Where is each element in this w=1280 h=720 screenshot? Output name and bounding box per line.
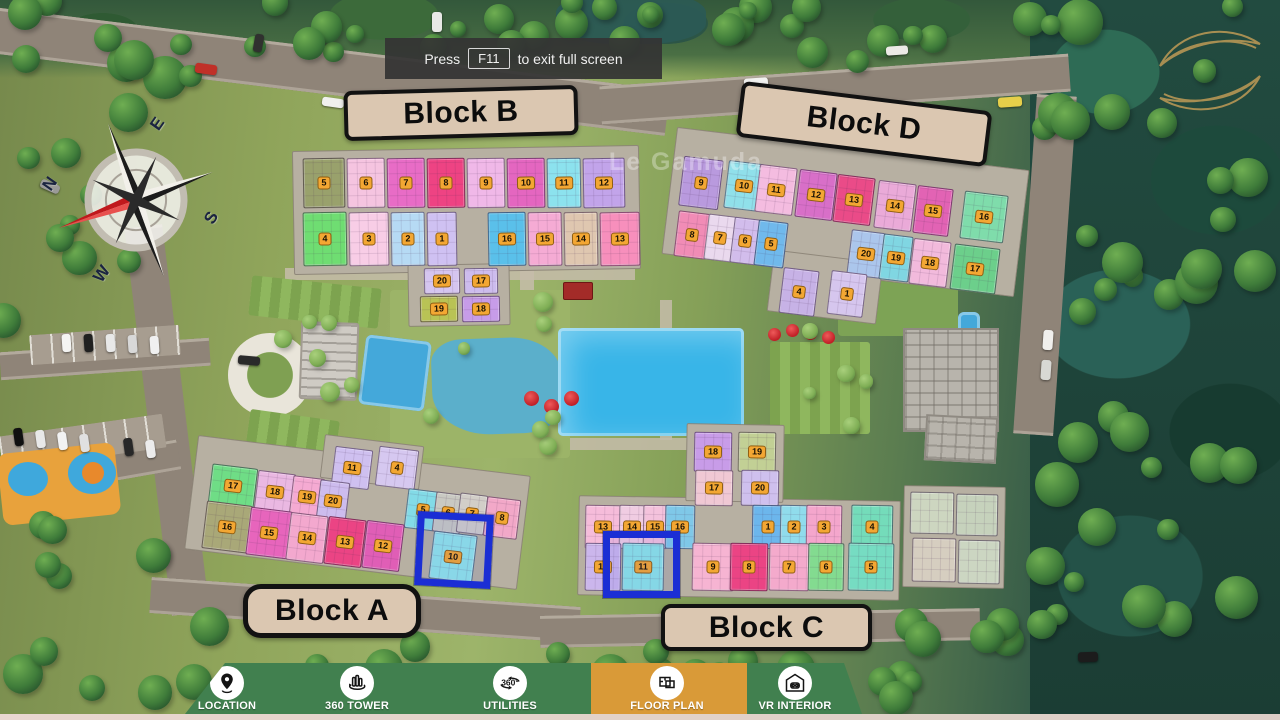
car (321, 97, 344, 109)
tree (545, 410, 560, 425)
unit-number-badge: 10 (734, 178, 753, 193)
leisure-pool (358, 334, 432, 412)
tree (1110, 412, 1149, 451)
unit-number-badge: 1 (840, 287, 855, 301)
unit-tile[interactable]: 13 (323, 516, 367, 568)
tree (1220, 447, 1257, 484)
unit-number-badge: 18 (472, 302, 490, 315)
unit-number-badge: 20 (856, 246, 875, 261)
leaf-emblem-logo (1150, 18, 1270, 128)
unit-number-badge: 9 (479, 176, 492, 189)
unit-number-badge: 7 (399, 176, 412, 189)
unit-number-badge: 7 (713, 231, 728, 245)
tree (1210, 207, 1235, 232)
tree (1041, 15, 1061, 35)
selected-unit-highlight (603, 531, 680, 598)
tree (423, 408, 439, 424)
car (105, 334, 115, 353)
unit-number-badge: 19 (748, 445, 766, 458)
nav-item-360-tower[interactable]: 360 TOWER (297, 663, 417, 714)
nav-label-vr-interior: VR INTERIOR (735, 700, 855, 712)
block-a-label: Block A (243, 584, 421, 638)
toast-prefix: Press (424, 51, 460, 67)
unit-tile[interactable]: 19 (420, 296, 458, 323)
fullscreen-toast: Press F11 to exit full screen (385, 38, 662, 79)
unit-tile[interactable] (912, 538, 957, 583)
tree (802, 323, 818, 339)
unit-number-badge: 20 (323, 493, 342, 508)
tree (346, 25, 364, 43)
unit-number-badge: 4 (865, 520, 878, 533)
unit-tile[interactable]: 16 (959, 190, 1009, 243)
tree (458, 342, 470, 354)
unit-tile[interactable]: 18 (462, 296, 500, 323)
tree (1058, 422, 1098, 462)
tree (35, 552, 61, 578)
tree (12, 45, 40, 73)
unit-number-badge: 18 (920, 255, 939, 270)
unit-number-badge: 15 (259, 525, 278, 540)
unit-number-badge: 17 (472, 274, 490, 287)
unit-tile[interactable]: 17 (949, 243, 1000, 294)
unit-number-badge: 18 (704, 445, 722, 458)
unit-number-badge: 8 (742, 560, 755, 573)
unit-number-badge: 17 (965, 261, 984, 276)
tree (903, 26, 922, 45)
car (998, 96, 1023, 108)
car (1042, 330, 1053, 351)
unit-number-badge: 5 (764, 237, 779, 251)
tree (323, 42, 344, 63)
unit-number-badge: 11 (767, 182, 786, 197)
unit-tile[interactable]: 17 (695, 470, 734, 507)
tree (1228, 158, 1268, 198)
unit-tile[interactable]: 12 (361, 520, 405, 572)
unit-number-badge: 5 (317, 176, 330, 189)
unit-number-badge: 3 (817, 520, 830, 533)
compass-rose: N E S W (48, 112, 224, 288)
unit-tile[interactable]: 6 (808, 543, 845, 592)
tree (879, 681, 913, 715)
unit-number-badge: 19 (297, 489, 316, 504)
tree (1026, 547, 1065, 586)
tree (114, 40, 154, 80)
car (127, 335, 137, 354)
unit-tile[interactable]: 18 (694, 432, 733, 473)
nav-item-utilities[interactable]: 360° UTILITIES (450, 663, 570, 714)
unit-number-badge: 12 (806, 187, 825, 202)
tree (450, 21, 466, 37)
unit-number-badge: 15 (536, 232, 554, 245)
tree (859, 374, 873, 388)
tree (532, 421, 549, 438)
unit-number-badge: 15 (923, 203, 942, 218)
unit-number-badge: 20 (751, 481, 769, 494)
tree (1076, 225, 1098, 247)
tree (138, 675, 173, 710)
unit-tile[interactable]: 3 (349, 212, 390, 267)
tree (1027, 610, 1056, 639)
tree (546, 642, 571, 667)
unit-tile[interactable]: 14 (285, 512, 329, 564)
unit-tile[interactable]: 2 (391, 212, 426, 267)
block-c-label: Block C (661, 604, 872, 651)
tree (919, 25, 947, 53)
service-building (924, 414, 998, 464)
unit-tile[interactable]: 7 (769, 543, 810, 592)
unit-tile[interactable]: 14 (564, 212, 599, 267)
unit-number-badge: 9 (706, 560, 719, 573)
unit-tile[interactable]: 9 (692, 543, 735, 592)
tree (274, 330, 291, 347)
unit-number-badge: 5 (864, 560, 877, 573)
tree (846, 50, 869, 73)
unit-number-badge: 12 (595, 176, 613, 189)
unit-tile[interactable]: 6 (347, 158, 386, 209)
nav-item-vr-interior[interactable]: VR INTERIOR (735, 663, 855, 714)
unit-tile[interactable]: 17 (464, 268, 498, 295)
unit-number-badge: 16 (498, 232, 516, 245)
nav-label-floor-plan: FLOOR PLAN (607, 700, 727, 712)
tree (1122, 585, 1166, 629)
tree (17, 147, 39, 169)
car (238, 355, 261, 366)
unit-number-badge: 13 (335, 534, 354, 549)
developer-watermark: Le Gamuda (556, 148, 816, 177)
unit-number-badge: 4 (318, 232, 331, 245)
floor-plan-icon (650, 666, 684, 700)
unit-number-badge: 3 (362, 232, 375, 245)
flower-bed (822, 331, 835, 344)
unit-number-badge: 16 (974, 209, 993, 224)
unit-number-badge: 17 (223, 478, 242, 493)
tree (642, 6, 659, 23)
unit-tile[interactable]: 7 (387, 158, 426, 209)
selected-unit-highlight (414, 511, 494, 589)
unit-number-badge: 1 (761, 520, 774, 533)
tree (712, 13, 744, 45)
unit-tile[interactable]: 4 (778, 267, 819, 317)
unit-tile[interactable]: 14 (873, 180, 917, 232)
unit-number-badge: 2 (401, 232, 414, 245)
tree (905, 621, 940, 656)
unit-number-badge: 8 (685, 228, 700, 242)
unit-tile[interactable] (956, 494, 999, 537)
red-pavilion (563, 282, 593, 300)
splash-pool (8, 462, 48, 496)
unit-number-badge: 20 (433, 274, 451, 287)
unit-tile[interactable]: 18 (908, 238, 951, 288)
bottom-nav: LOCATION 360 TOWER 360° (185, 663, 862, 714)
unit-number-badge: 8 (439, 176, 452, 189)
tree (1078, 508, 1116, 546)
car (1078, 652, 1098, 663)
main-pool (558, 328, 744, 436)
block-b-label: Block B (343, 85, 578, 141)
tree (309, 349, 326, 366)
unit-tile[interactable]: 10 (507, 158, 546, 209)
unit-number-badge: 11 (555, 176, 573, 189)
tree (302, 315, 316, 329)
tree (970, 620, 1004, 654)
unit-number-badge: 11 (343, 460, 362, 475)
flower-bed (786, 324, 799, 337)
tree (1215, 576, 1258, 619)
unit-number-badge: 13 (611, 232, 629, 245)
unit-number-badge: 12 (373, 538, 392, 553)
unit-number-badge: 1 (435, 232, 448, 245)
unit-tile[interactable]: 8 (427, 158, 466, 209)
bottom-edge-strip (0, 714, 1280, 720)
tree (38, 516, 66, 544)
unit-number-badge: 2 (787, 520, 800, 533)
unit-number-badge: 14 (885, 198, 904, 213)
unit-tile[interactable]: 16 (488, 212, 527, 267)
unit-number-badge: 6 (738, 234, 753, 248)
unit-tile[interactable]: 20 (424, 268, 460, 295)
unit-number-badge: 14 (297, 530, 316, 545)
car (83, 334, 93, 353)
unit-tile[interactable]: 4 (375, 446, 420, 491)
unit-number-badge: 9 (694, 176, 709, 190)
tree (293, 27, 325, 59)
unit-tile[interactable]: 8 (730, 543, 769, 592)
unit-tile[interactable]: 5 (848, 543, 895, 592)
unit-tile[interactable]: 5 (303, 158, 346, 209)
tree (1094, 278, 1117, 301)
unit-number-badge: 6 (819, 560, 832, 573)
car (61, 334, 71, 353)
f11-key: F11 (468, 48, 509, 69)
unit-number-badge: 10 (517, 176, 535, 189)
tree (1051, 101, 1090, 140)
unit-tile[interactable] (958, 540, 1001, 585)
unit-tile[interactable]: 16 (201, 500, 253, 553)
tree (1102, 242, 1143, 283)
unit-tile[interactable]: 1 (826, 270, 867, 318)
unit-number-badge: 8 (495, 511, 510, 525)
tree (1069, 298, 1096, 325)
unit-number-badge: 4 (390, 461, 405, 475)
tree (739, 2, 757, 20)
nav-label-utilities: UTILITIES (450, 700, 570, 712)
tree (170, 34, 192, 56)
pool-umbrella (564, 391, 579, 406)
unit-number-badge: 18 (265, 484, 284, 499)
tree (792, 0, 821, 22)
unit-number-badge: 19 (886, 250, 905, 265)
floor-plan-page: 5678910111243211615141320171918910111213… (0, 0, 1280, 720)
unit-tile[interactable]: 20 (741, 470, 780, 507)
tower-360-icon (340, 666, 374, 700)
unit-number-badge: 17 (705, 481, 723, 494)
car (886, 45, 909, 56)
location-pin-icon (210, 666, 244, 700)
car (13, 427, 24, 446)
unit-tile[interactable]: 15 (912, 185, 954, 237)
tree (1234, 250, 1276, 292)
unit-tile[interactable]: 13 (600, 212, 641, 267)
car (149, 336, 159, 355)
unit-tile[interactable] (910, 492, 955, 535)
unit-number-badge: 19 (430, 302, 448, 315)
tree (79, 675, 105, 701)
unit-tile[interactable]: 19 (738, 432, 777, 473)
toast-suffix: to exit full screen (518, 51, 623, 67)
car (432, 12, 442, 32)
play-feature (82, 462, 104, 484)
nav-label-location: LOCATION (167, 700, 287, 712)
unit-tile[interactable]: 15 (528, 212, 563, 267)
unit-tile[interactable]: 4 (303, 212, 348, 267)
unit-tile[interactable]: 9 (467, 158, 506, 209)
nav-label-360-tower: 360 TOWER (297, 700, 417, 712)
tree (30, 637, 58, 665)
unit-tile[interactable]: 13 (832, 174, 876, 226)
tree (837, 365, 854, 382)
unit-number-badge: 4 (792, 285, 807, 299)
tree (1057, 0, 1103, 45)
tree (190, 607, 229, 646)
pool-umbrella (524, 391, 539, 406)
compass-star (48, 112, 224, 288)
unit-number-badge: 6 (359, 176, 372, 189)
unit-tile[interactable]: 1 (427, 212, 458, 267)
vr-interior-icon (778, 666, 812, 700)
tree (0, 303, 21, 338)
unit-tile[interactable]: 5 (753, 219, 788, 268)
nav-item-floor-plan[interactable]: FLOOR PLAN (607, 663, 727, 714)
car (1040, 360, 1051, 381)
unit-number-badge: 7 (782, 560, 795, 573)
utilities-360-icon: 360° (493, 666, 527, 700)
unit-number-badge: 14 (572, 232, 590, 245)
unit-number-badge: 16 (217, 519, 236, 534)
tree (1141, 457, 1162, 478)
tree (1035, 462, 1079, 506)
tree (344, 377, 359, 392)
unit-number-badge: 13 (844, 192, 863, 207)
flower-bed (768, 328, 781, 341)
